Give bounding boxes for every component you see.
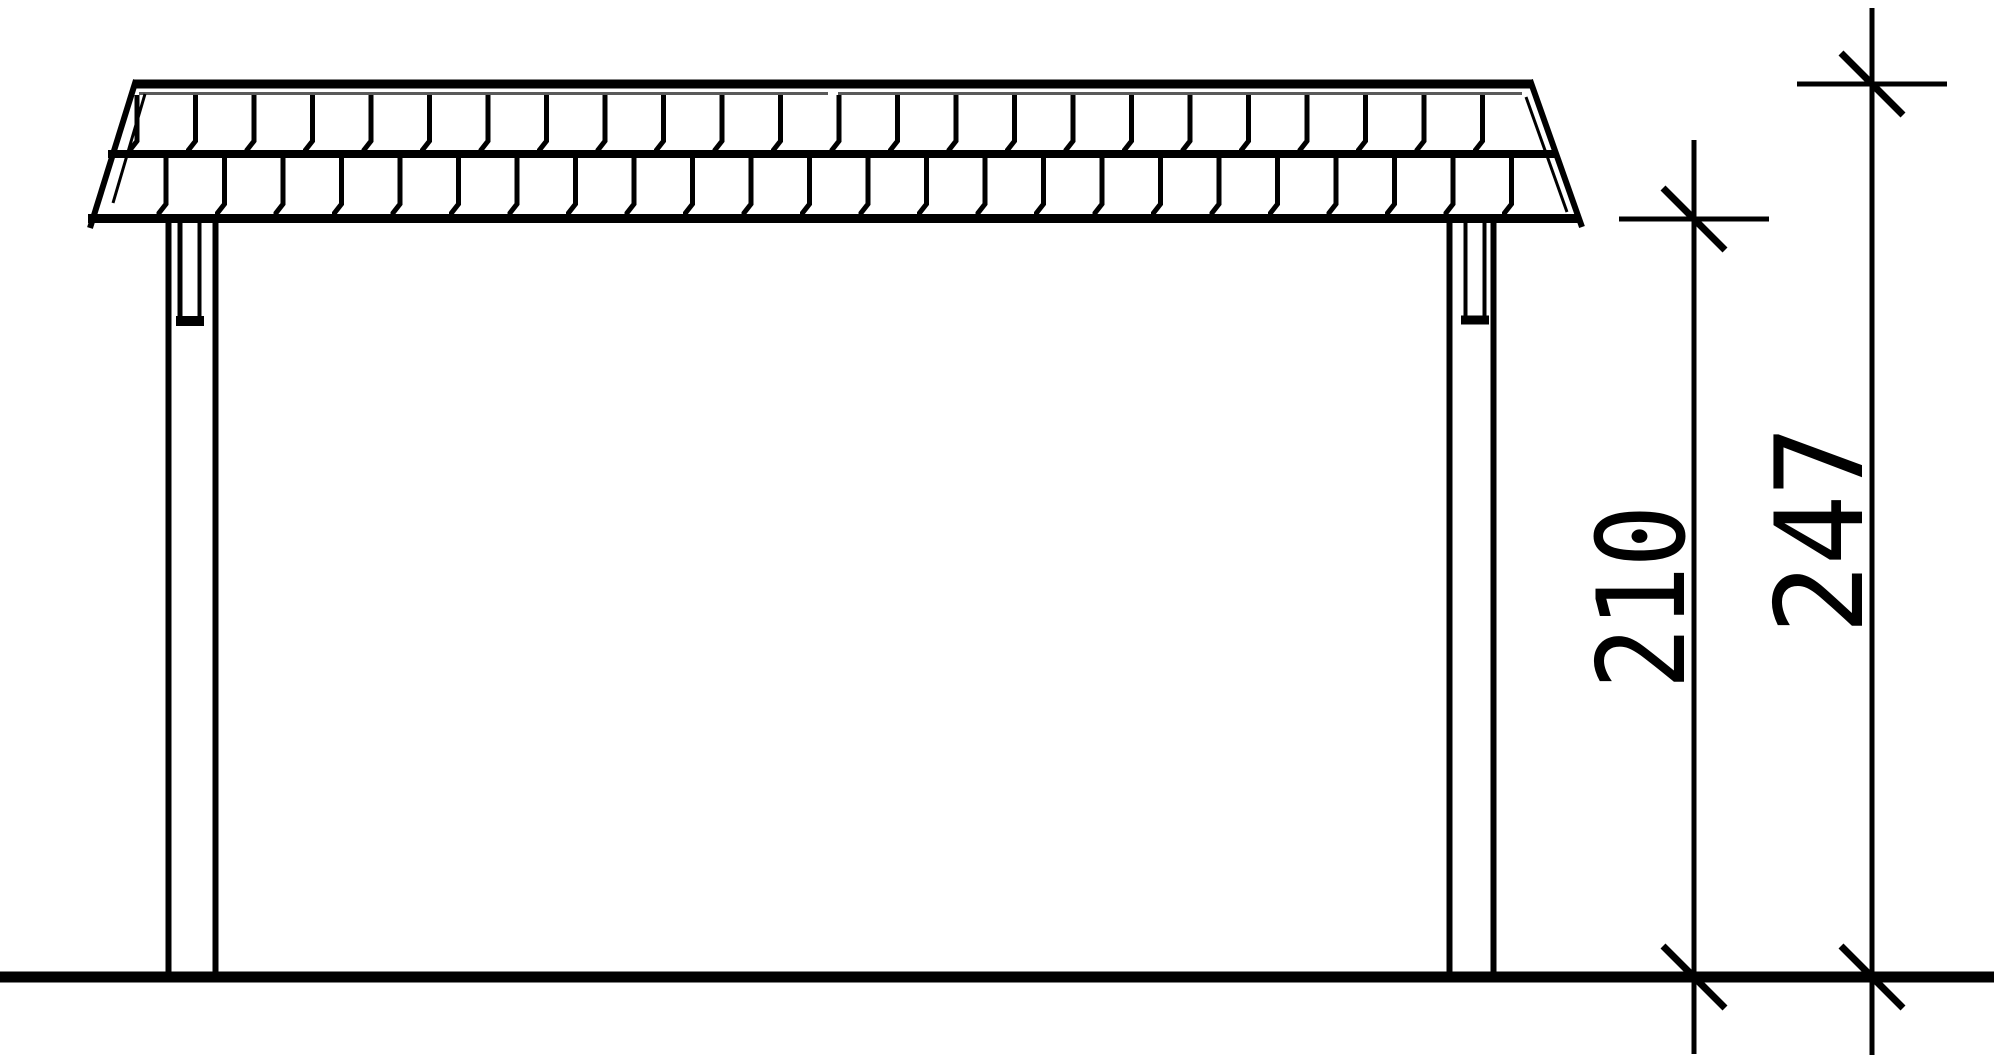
left-post-anchor-slot xyxy=(176,222,204,321)
dimension-210-label: 210 xyxy=(1572,507,1713,690)
dimension-247-label: 247 xyxy=(1750,428,1891,635)
right-post-anchor-slot xyxy=(1461,222,1489,320)
roof-shingle-strokes-lower-row xyxy=(159,158,1512,220)
roof-shingle-strokes-upper-row xyxy=(130,95,1483,156)
carport-side-elevation-drawing: 210 247 xyxy=(0,0,1994,1058)
left-post xyxy=(169,219,216,974)
drawing-canvas: 210 247 xyxy=(0,0,1994,1058)
roof xyxy=(88,80,1582,228)
right-post xyxy=(1450,219,1494,974)
